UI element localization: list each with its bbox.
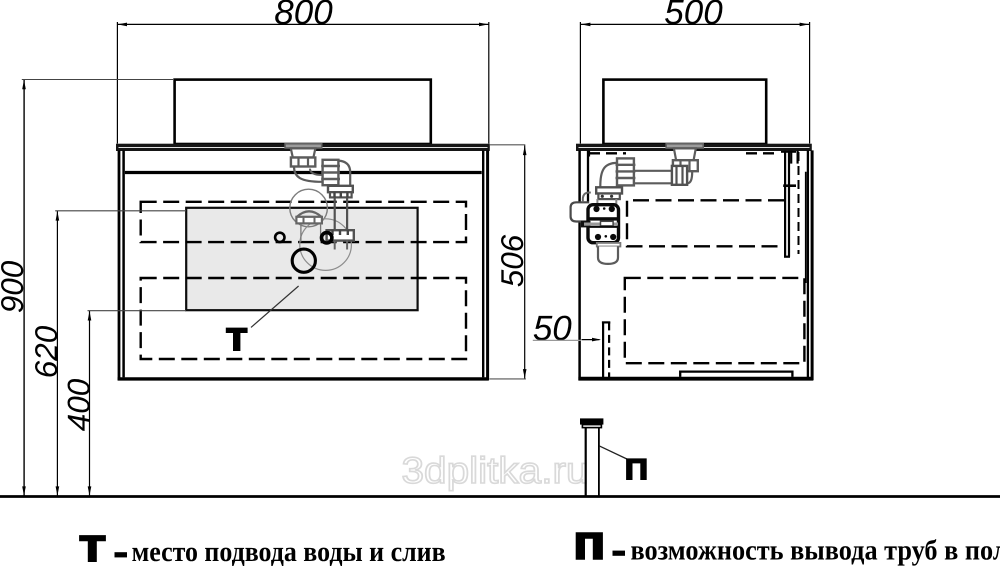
svg-text:возможность вывода труб в пол: возможность вывода труб в пол (631, 536, 1000, 566)
svg-text:место подвода воды и слив: место подвода воды и слив (132, 537, 446, 566)
svg-text:506: 506 (494, 234, 530, 287)
svg-text:900: 900 (0, 260, 30, 313)
svg-text:800: 800 (274, 0, 333, 32)
svg-text:400: 400 (60, 378, 96, 431)
svg-text:3dplitka.ru: 3dplitka.ru (402, 450, 589, 491)
svg-text:500: 500 (664, 0, 723, 32)
svg-text:620: 620 (28, 325, 64, 378)
svg-text:50: 50 (533, 309, 572, 348)
